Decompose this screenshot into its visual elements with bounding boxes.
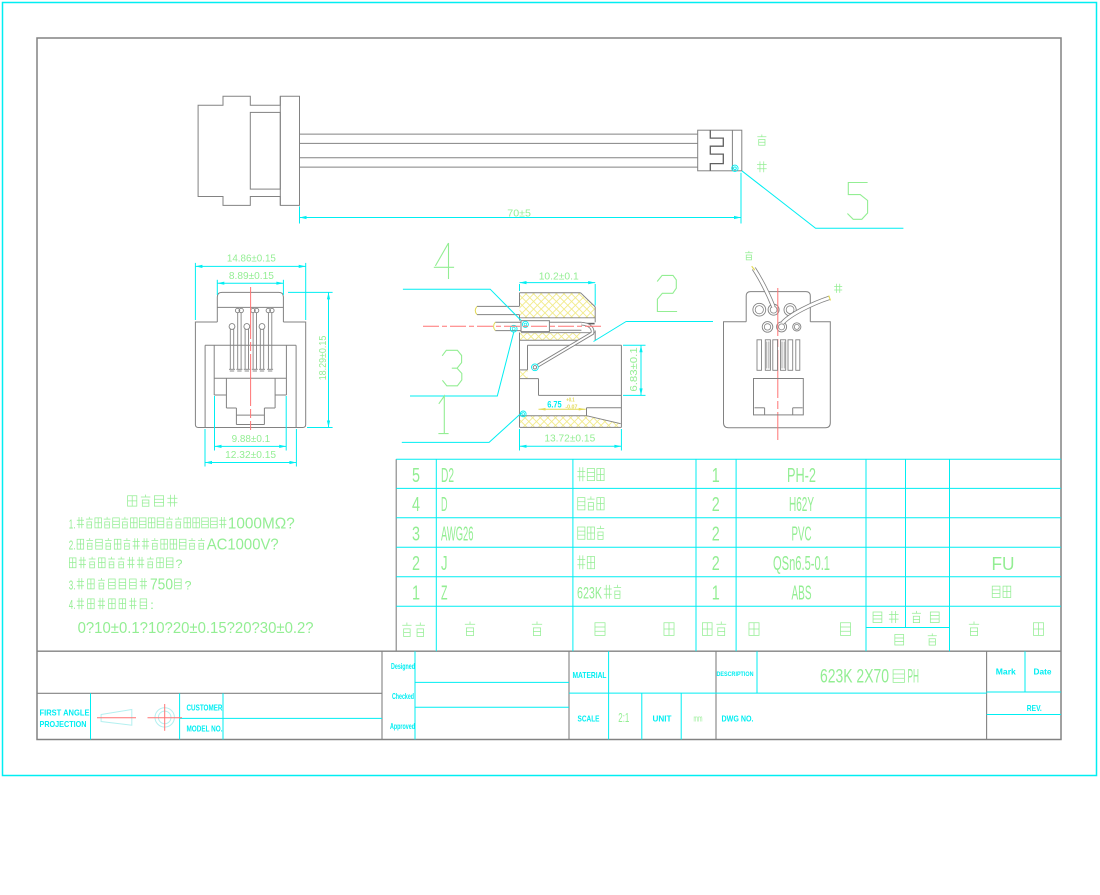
svg-text:1000MΩ?: 1000MΩ? xyxy=(228,515,295,532)
svg-text:2: 2 xyxy=(712,494,720,516)
svg-text:AWG26: AWG26 xyxy=(441,524,474,546)
svg-text:70±5: 70±5 xyxy=(507,207,531,219)
svg-text:750: 750 xyxy=(150,576,173,593)
svg-text:2: 2 xyxy=(712,524,720,546)
svg-text:1: 1 xyxy=(712,465,720,487)
svg-text:FU: FU xyxy=(992,554,1015,574)
svg-text:MATERIAL: MATERIAL xyxy=(573,670,607,680)
svg-text:H62Y: H62Y xyxy=(789,494,814,516)
svg-text:Mark: Mark xyxy=(996,666,1016,676)
svg-text:4: 4 xyxy=(412,494,420,516)
svg-text:1.: 1. xyxy=(69,516,76,531)
svg-text:3.: 3. xyxy=(69,577,76,592)
svg-text:PVC: PVC xyxy=(792,524,812,546)
svg-text:2: 2 xyxy=(712,553,720,575)
svg-text:J: J xyxy=(441,553,448,575)
svg-text:FIRST ANGLE: FIRST ANGLE xyxy=(40,708,90,718)
svg-text:PROJECTION: PROJECTION xyxy=(40,719,87,729)
svg-text:2:1: 2:1 xyxy=(618,710,629,725)
svg-text:623K 2X70: 623K 2X70 xyxy=(820,667,889,688)
svg-text:0?10±0.1?10?20±0.15?20?30±0.2?: 0?10±0.1?10?20±0.15?20?30±0.2? xyxy=(78,620,314,637)
svg-text::: : xyxy=(150,598,154,612)
svg-text:13.72±0.15: 13.72±0.15 xyxy=(544,433,595,445)
svg-text:1: 1 xyxy=(712,583,720,605)
svg-text:1: 1 xyxy=(412,583,420,605)
svg-text:PH: PH xyxy=(908,667,920,688)
svg-text:4.: 4. xyxy=(69,597,76,612)
svg-text:8.89±0.15: 8.89±0.15 xyxy=(229,270,274,282)
svg-text:REV.: REV. xyxy=(1027,703,1042,713)
svg-text:623K: 623K xyxy=(577,584,602,603)
svg-text:MODEL NO.: MODEL NO. xyxy=(187,723,223,733)
svg-text:QSn6.5-0.1: QSn6.5-0.1 xyxy=(773,553,830,575)
svg-text:Approved: Approved xyxy=(390,721,415,731)
svg-text:Designed: Designed xyxy=(391,661,415,671)
svg-text:10.2±0.1: 10.2±0.1 xyxy=(539,270,579,282)
svg-text:9.88±0.1: 9.88±0.1 xyxy=(232,433,271,445)
svg-text:Checked: Checked xyxy=(392,691,414,701)
svg-text:Z: Z xyxy=(441,583,448,605)
svg-text:D2: D2 xyxy=(441,465,454,487)
svg-text:2: 2 xyxy=(412,553,420,575)
svg-text:Date: Date xyxy=(1034,666,1052,676)
svg-text:?: ? xyxy=(176,557,183,571)
svg-text:DWG NO.: DWG NO. xyxy=(722,713,754,723)
svg-text:12.32±0.15: 12.32±0.15 xyxy=(225,449,276,461)
svg-text:6.83±0.1: 6.83±0.1 xyxy=(628,347,640,391)
svg-text:mm: mm xyxy=(694,714,703,725)
svg-text:D: D xyxy=(441,494,448,516)
svg-text:6.75: 6.75 xyxy=(547,399,562,410)
svg-text:+0.1: +0.1 xyxy=(566,398,575,404)
svg-text:?: ? xyxy=(185,578,192,592)
svg-text:ABS: ABS xyxy=(792,583,812,605)
svg-text:3: 3 xyxy=(412,524,420,546)
svg-text:AC1000V?: AC1000V? xyxy=(207,537,279,554)
svg-text:14.86±0.15: 14.86±0.15 xyxy=(227,253,276,265)
svg-text:18.29±0.15: 18.29±0.15 xyxy=(317,336,329,381)
svg-text:SCALE: SCALE xyxy=(578,713,600,723)
svg-text:PH-2: PH-2 xyxy=(787,465,816,487)
svg-text:UNIT: UNIT xyxy=(653,713,673,723)
svg-text:DESCRIPTION: DESCRIPTION xyxy=(717,672,754,678)
svg-text:2.: 2. xyxy=(69,538,76,553)
svg-text:5: 5 xyxy=(412,465,420,487)
svg-text:CUSTOMER: CUSTOMER xyxy=(187,702,223,712)
